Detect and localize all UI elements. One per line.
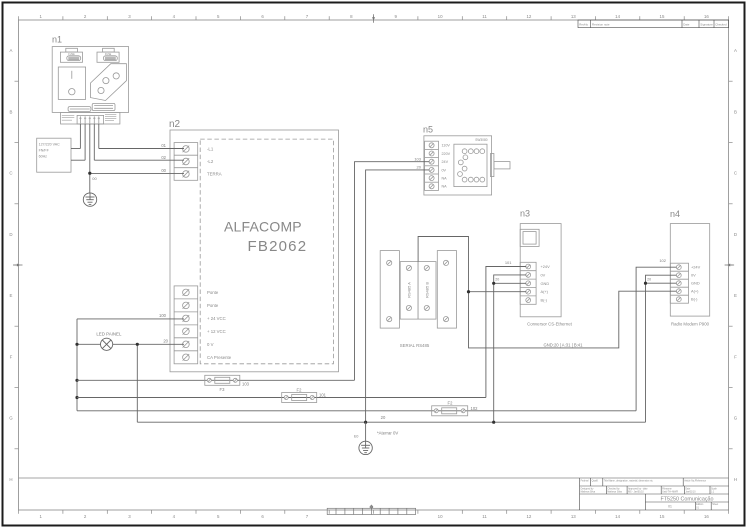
svg-text:D: D [9, 232, 12, 237]
svg-text:01: 01 [161, 143, 166, 148]
svg-text:01: 01 [668, 505, 672, 509]
svg-text:GND: GND [541, 281, 550, 286]
svg-text:15: 15 [660, 514, 665, 519]
svg-text:Ponte: Ponte [207, 303, 219, 308]
svg-text:A(+): A(+) [691, 289, 699, 294]
svg-text:n3: n3 [520, 209, 530, 219]
svg-text:NA: NA [442, 177, 448, 181]
svg-text:*Aterrar 0V: *Aterrar 0V [377, 430, 398, 435]
svg-text:Ponte: Ponte [207, 290, 219, 295]
svg-text:Signature: Signature [700, 22, 713, 26]
svg-text:Approved by - date: Approved by - date [628, 487, 648, 490]
svg-text:B: B [10, 110, 13, 115]
svg-text:103: 103 [242, 382, 250, 387]
svg-text:24V: 24V [442, 160, 449, 164]
svg-text:102: 102 [659, 258, 666, 263]
svg-text:B(-): B(-) [541, 298, 548, 303]
svg-text:Date: Date [683, 22, 689, 26]
svg-text:RS485 A: RS485 A [407, 282, 412, 298]
svg-text:FUSE: FUSE [105, 53, 112, 56]
svg-text:20: 20 [417, 165, 422, 170]
svg-text:13: 13 [571, 514, 576, 519]
svg-text:LED PAINEL: LED PAINEL [96, 331, 122, 336]
svg-text:n2: n2 [169, 119, 181, 130]
svg-text:D: D [734, 232, 737, 237]
svg-text:F2: F2 [448, 401, 454, 406]
svg-text:FUSE: FUSE [68, 53, 75, 56]
svg-text:RevNo: RevNo [579, 22, 588, 26]
svg-text:10: 10 [438, 14, 443, 19]
svg-text:C: C [734, 171, 737, 176]
svg-text:12: 12 [526, 14, 531, 19]
svg-text:E: E [734, 293, 737, 298]
svg-text:Sheet: Sheet [712, 503, 718, 506]
svg-text:Edition: Edition [696, 503, 704, 506]
svg-text:H: H [9, 477, 12, 482]
svg-text:Matheus Silva: Matheus Silva [581, 491, 596, 494]
svg-text:FB2062: FB2062 [248, 238, 308, 255]
svg-text:220V: 220V [442, 152, 451, 156]
svg-text:F: F [10, 355, 13, 360]
svg-text:A: A [734, 48, 737, 53]
svg-text:14: 14 [615, 514, 620, 519]
svg-text:CA Presente: CA Presente [207, 355, 232, 360]
svg-text:00: 00 [92, 176, 97, 181]
svg-text:20: 20 [647, 277, 651, 281]
svg-text:Revision note: Revision note [592, 22, 610, 26]
svg-text:H: H [734, 477, 737, 482]
svg-text:MS - Jan/01/10: MS - Jan/01/10 [628, 492, 644, 494]
svg-text:F3: F3 [220, 387, 226, 392]
svg-text:10: 10 [438, 514, 443, 519]
svg-text:Filename: Filename [662, 488, 672, 490]
svg-text:ALFACOMP: ALFACOMP [224, 218, 302, 234]
svg-text:F2: F2 [297, 388, 303, 393]
svg-text:F: F [734, 355, 737, 360]
svg-text:102: 102 [471, 406, 479, 411]
svg-text:SERIAL RS485: SERIAL RS485 [400, 343, 430, 348]
svg-text:NA: NA [442, 185, 448, 189]
svg-text:0V: 0V [691, 273, 696, 278]
svg-text:20: 20 [381, 415, 386, 420]
svg-text:60Hz: 60Hz [39, 155, 48, 159]
svg-text:13: 13 [571, 14, 576, 19]
svg-text:-L2: -L2 [207, 159, 214, 164]
svg-text:TERRA: TERRA [207, 172, 222, 177]
svg-text:n5: n5 [423, 125, 433, 135]
svg-text:G: G [734, 416, 738, 421]
svg-text:Checked by: Checked by [607, 488, 620, 490]
svg-text:15: 15 [660, 14, 665, 19]
svg-text:FN/FF: FN/FF [39, 149, 50, 153]
svg-text:14: 14 [615, 14, 620, 19]
svg-text:0 V: 0 V [207, 342, 214, 347]
svg-text:C: C [9, 171, 12, 176]
svg-text:E0: E0 [354, 435, 358, 439]
svg-text:11: 11 [482, 514, 487, 519]
svg-text:Designed by: Designed by [581, 488, 595, 490]
svg-text:16: 16 [704, 514, 709, 519]
svg-text:Jan/01/10: Jan/01/10 [685, 492, 696, 494]
svg-text:+24V: +24V [691, 265, 701, 270]
svg-text:11: 11 [482, 14, 487, 19]
svg-text:+ 24 VCC: + 24 VCC [207, 316, 226, 321]
svg-text:02: 02 [161, 155, 166, 160]
svg-text:Checked: Checked [715, 22, 727, 26]
svg-text:Unid-TH--MWR: Unid-TH--MWR [662, 492, 678, 494]
svg-text:n1: n1 [52, 35, 62, 45]
svg-text:101: 101 [319, 393, 327, 398]
svg-text:110V: 110V [442, 144, 451, 148]
svg-text:20: 20 [163, 338, 168, 343]
svg-text:12: 12 [526, 514, 531, 519]
svg-text:B: B [734, 110, 737, 115]
svg-text:+24V: +24V [541, 264, 551, 269]
svg-text:Date: Date [685, 487, 691, 490]
svg-text:0V: 0V [442, 168, 447, 172]
svg-text:A: A [10, 48, 13, 53]
svg-text:101: 101 [505, 260, 512, 265]
svg-text:127/220 VAC: 127/220 VAC [39, 143, 61, 147]
svg-text:SW3080: SW3080 [475, 138, 487, 142]
svg-text:FT5250 Comunicação: FT5250 Comunicação [660, 496, 713, 502]
svg-text:Conversor CS-Ethernet: Conversor CS-Ethernet [527, 322, 572, 327]
svg-text:Title/Name, designation, mater: Title/Name, designation, material, dimen… [604, 480, 654, 483]
svg-text:G: G [9, 416, 13, 421]
svg-text:Matheus Silva: Matheus Silva [607, 491, 622, 494]
svg-text:B(-): B(-) [691, 297, 698, 302]
svg-text:GND: GND [691, 281, 700, 286]
svg-text:20: 20 [495, 278, 499, 282]
svg-text:16: 16 [704, 14, 709, 19]
svg-text:RS485 B: RS485 B [424, 282, 429, 298]
svg-text:E: E [10, 293, 13, 298]
svg-text:Article No./Reference: Article No./Reference [684, 480, 707, 483]
svg-text:103: 103 [414, 156, 421, 161]
svg-text:-L1: -L1 [207, 147, 214, 152]
svg-text:100: 100 [159, 313, 167, 318]
svg-text:00: 00 [161, 168, 166, 173]
svg-text:A(+): A(+) [541, 289, 549, 294]
svg-text:+ 12 VCC: + 12 VCC [207, 329, 226, 334]
svg-text:Scale: Scale [711, 488, 717, 490]
svg-text:0V: 0V [541, 272, 546, 277]
svg-text:Federal: Federal [581, 480, 589, 483]
svg-text:GND:20 | A:31 | B:41: GND:20 | A:31 | B:41 [544, 343, 584, 348]
svg-text:n4: n4 [670, 209, 680, 219]
svg-text:Radio Modem P900: Radio Modem P900 [671, 322, 710, 327]
svg-text:Qualif.: Qualif. [592, 481, 599, 483]
